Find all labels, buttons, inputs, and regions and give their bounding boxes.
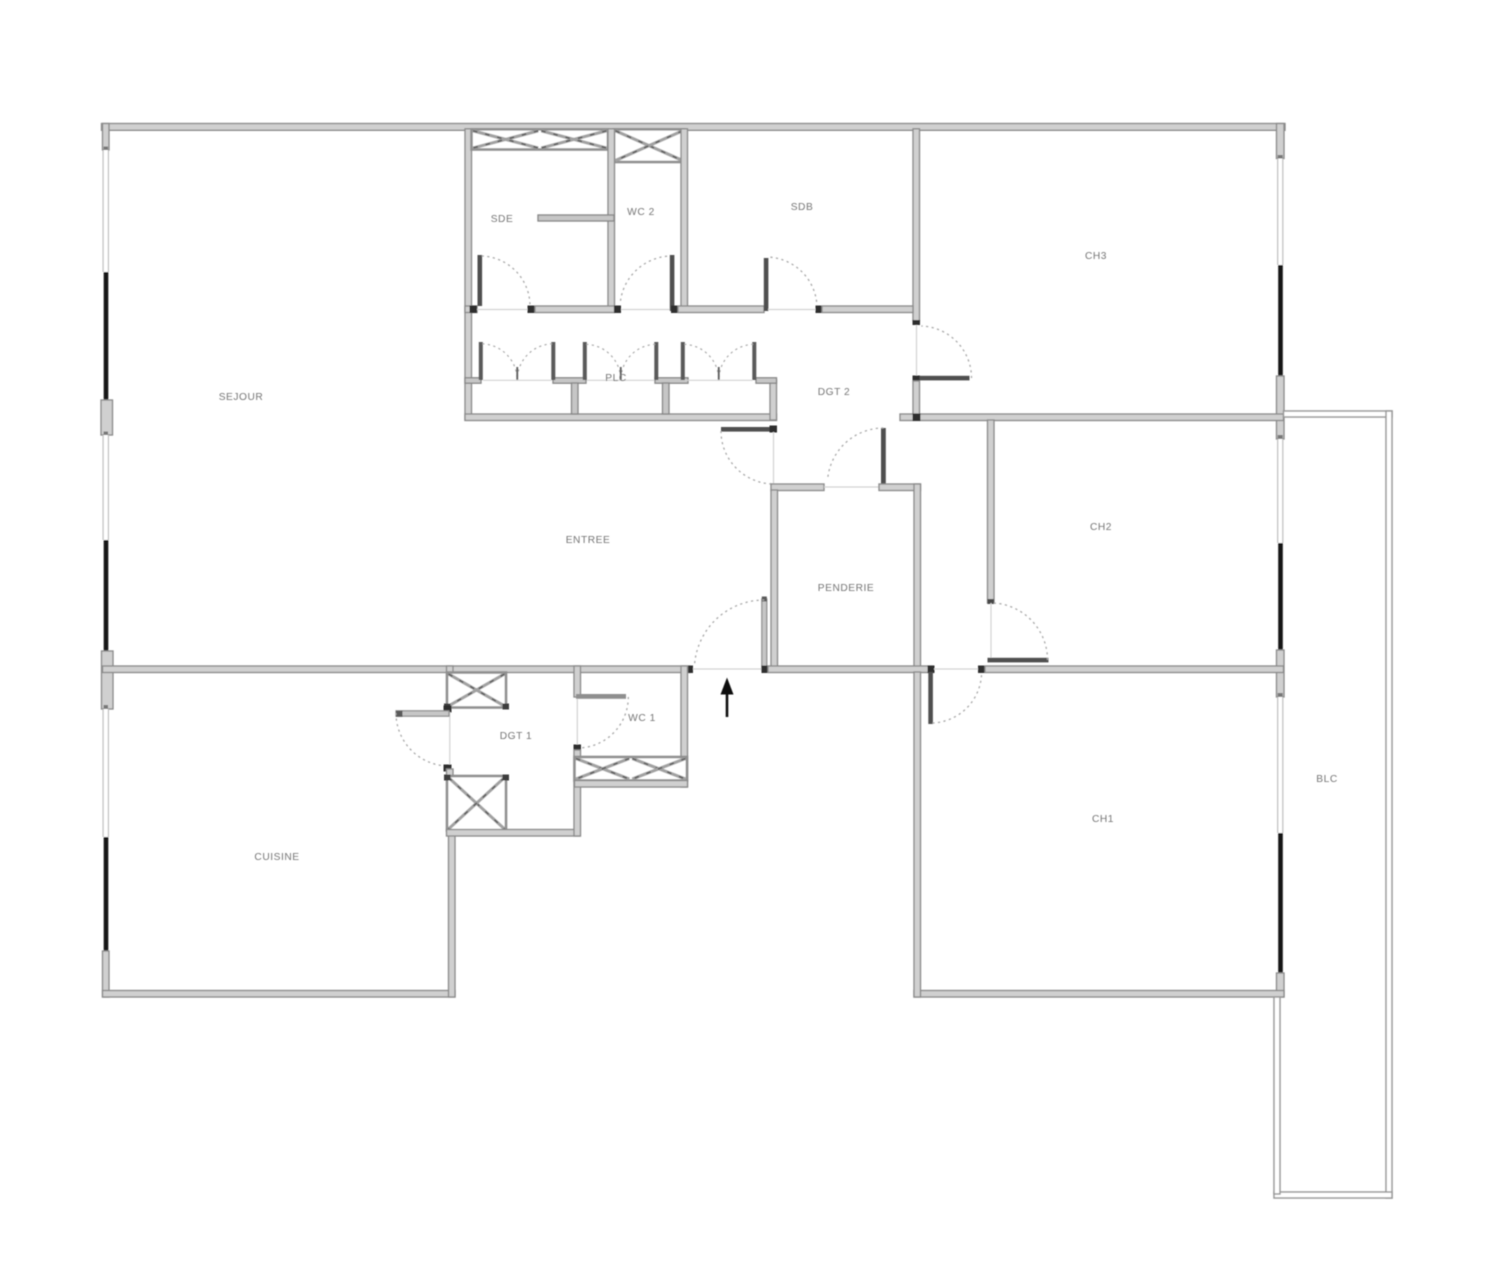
svg-text:DGT 1: DGT 1	[500, 731, 533, 742]
svg-text:SEJOUR: SEJOUR	[219, 392, 264, 403]
svg-text:CUISINE: CUISINE	[254, 852, 299, 863]
svg-text:CH2: CH2	[1090, 522, 1112, 533]
svg-text:ENTREE: ENTREE	[566, 535, 611, 546]
svg-text:PLC: PLC	[605, 373, 626, 384]
svg-text:CH3: CH3	[1085, 251, 1107, 262]
svg-text:SDB: SDB	[791, 202, 814, 213]
svg-text:WC 2: WC 2	[627, 207, 655, 218]
svg-text:BLC: BLC	[1316, 774, 1337, 785]
svg-text:CH1: CH1	[1092, 814, 1114, 825]
svg-text:DGT 2: DGT 2	[818, 387, 851, 398]
svg-text:WC 1: WC 1	[628, 713, 656, 724]
svg-text:PENDERIE: PENDERIE	[818, 583, 874, 594]
svg-text:SDE: SDE	[491, 214, 514, 225]
